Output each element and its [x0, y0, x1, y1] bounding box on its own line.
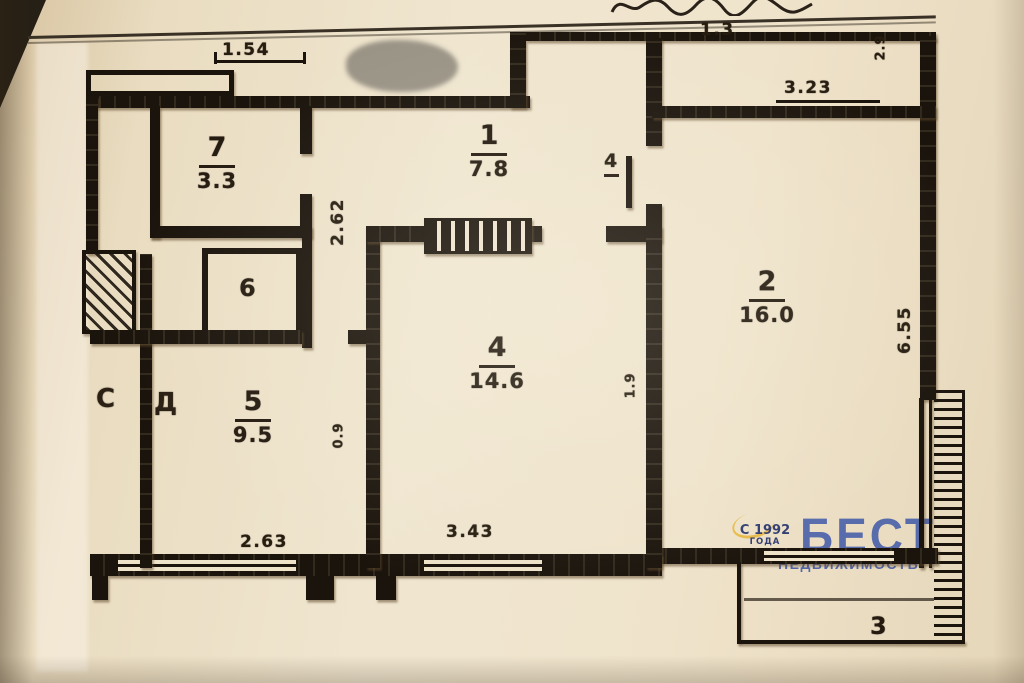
- room-label-3-balcony: 3: [870, 612, 887, 640]
- dim-right-vertical: 6.55: [895, 303, 915, 357]
- wall-segment: [150, 226, 312, 238]
- room-label-7: 7 3.3: [186, 134, 248, 195]
- room-area: 9.5: [222, 422, 284, 449]
- door-number-label: 4: [604, 150, 619, 177]
- wall-stub: [306, 576, 334, 600]
- wall-segment: [348, 330, 368, 344]
- redaction-blob: [346, 40, 458, 92]
- wall-segment: [150, 106, 160, 238]
- door-leaf: [626, 156, 632, 208]
- room-area: 14.6: [463, 368, 531, 395]
- room-number: 1: [471, 122, 508, 156]
- plan-drawing: 7 3.3 1 7.8 2 16.0 4 14.6 5 9.5 6 3 1.54…: [0, 0, 1024, 683]
- dim-tick: [303, 52, 306, 64]
- dim-bottom-left: 2.63: [240, 532, 288, 552]
- balcony-floor-line: [744, 598, 934, 601]
- dim-door-left: 0.9: [332, 422, 347, 448]
- wall-segment: [510, 32, 526, 108]
- room-area: 3.3: [186, 168, 248, 195]
- dim-bottom-middle: 3.43: [446, 522, 494, 542]
- wall-segment: [140, 254, 152, 568]
- wall-segment: [646, 38, 662, 146]
- window-frame-line: [929, 398, 932, 568]
- wall-segment: [90, 330, 302, 344]
- window-glass-line: [424, 564, 542, 567]
- marking-d: Д: [154, 388, 177, 418]
- wall-segment: [302, 238, 312, 348]
- dim-tick: [214, 52, 217, 64]
- room-label-1: 1 7.8: [458, 122, 520, 183]
- wall-segment: [646, 238, 662, 568]
- wall-top-protrusion: [86, 70, 234, 96]
- floor-plan-photo: С 1992 ГОДА БЕСТ НЕДВИЖИМОСТЬ: [0, 0, 1024, 683]
- wall-segment: [366, 226, 380, 568]
- window-glass-line: [764, 555, 894, 558]
- wall-segment: [652, 106, 936, 118]
- room-label-6: 6: [239, 274, 256, 302]
- dim-line: [214, 60, 306, 63]
- room-area: 7.8: [458, 156, 520, 183]
- room-label-5: 5 9.5: [222, 388, 284, 449]
- wall-segment: [300, 194, 312, 238]
- dim-line: [776, 100, 880, 103]
- dim-door-right: 1.9: [624, 372, 639, 398]
- room-number: 2: [749, 268, 786, 302]
- room-number: 4: [479, 334, 516, 368]
- room-label-2: 2 16.0: [733, 268, 801, 329]
- marking-s: С: [96, 384, 115, 414]
- dim-top-left: 1.54: [222, 40, 270, 60]
- room-area: 16.0: [733, 302, 801, 329]
- dim-top-right: 1.3: [700, 20, 735, 40]
- wall-segment: [86, 96, 98, 254]
- balcony-wall: [737, 640, 965, 644]
- dim-top-right-corner: 2.9: [874, 34, 889, 60]
- wall-stub: [376, 576, 396, 600]
- dim-corridor-vertical: 2.62: [328, 192, 348, 252]
- built-in-wardrobe-hatch: [424, 218, 532, 254]
- wall-segment: [920, 36, 936, 400]
- room-number: 5: [235, 388, 272, 422]
- wall-stub: [92, 576, 108, 600]
- dim-3-23: 3.23: [784, 78, 832, 98]
- wall-segment: [300, 106, 312, 154]
- room-number: 7: [199, 134, 236, 168]
- room-label-4: 4 14.6: [463, 334, 531, 395]
- duct-shaft: [82, 250, 136, 334]
- wall-segment: [646, 204, 662, 238]
- balcony-railing-hatch: [934, 390, 965, 642]
- balcony-wall: [737, 562, 741, 642]
- window-frame-line: [919, 398, 924, 568]
